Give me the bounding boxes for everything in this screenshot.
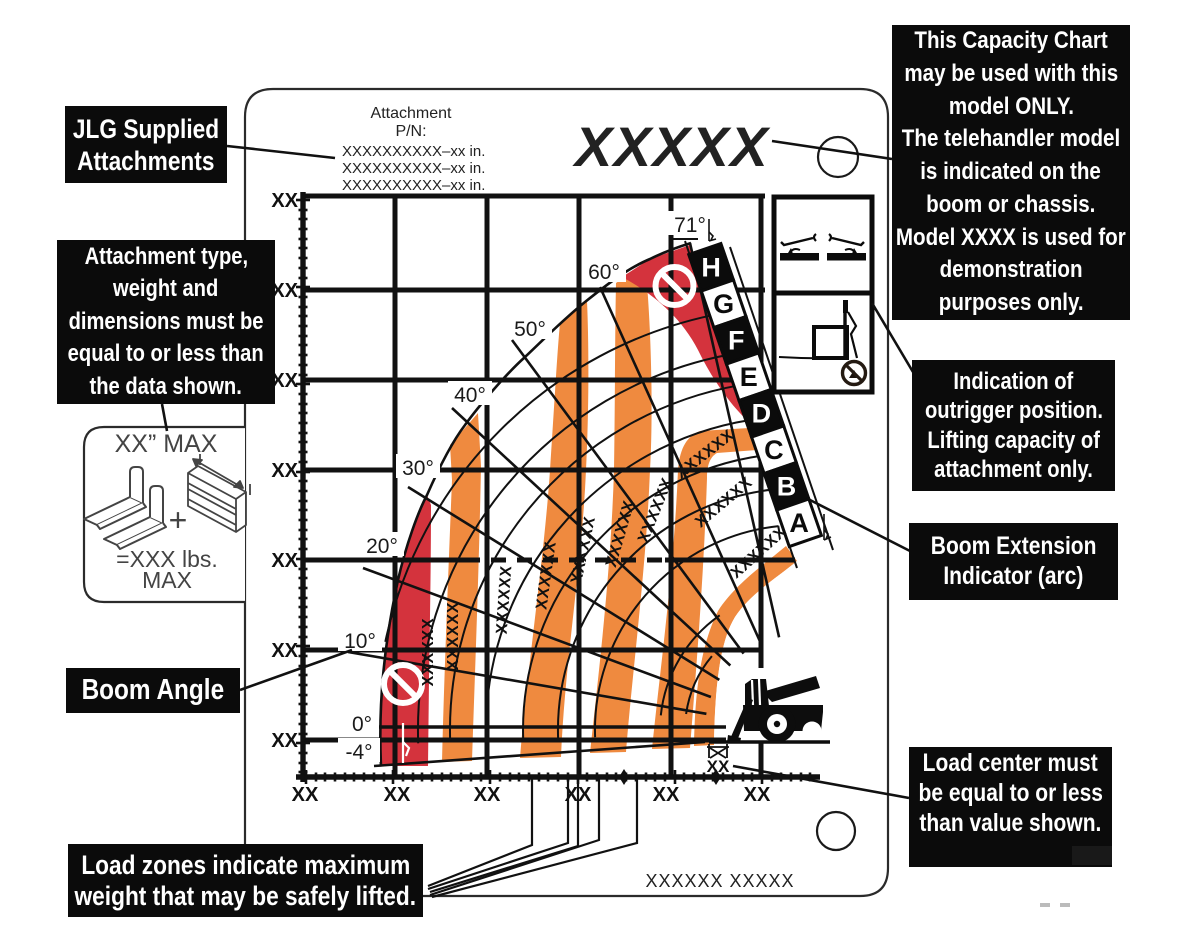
svg-text:XX: XX [384, 784, 411, 806]
svg-text:XX: XX [292, 784, 319, 806]
svg-text:F: F [728, 325, 745, 355]
svg-text:XX: XX [707, 757, 730, 776]
svg-text:XX: XX [653, 784, 680, 806]
svg-text:G: G [713, 289, 734, 319]
svg-text:E: E [740, 362, 758, 392]
svg-text:-4°: -4° [345, 741, 372, 764]
svg-text:XX: XX [271, 280, 298, 302]
svg-text:XX: XX [271, 190, 298, 212]
svg-text:30°: 30° [402, 457, 434, 480]
svg-text:71°: 71° [674, 214, 706, 237]
svg-text:XXXXXX: XXXXXX [420, 618, 437, 687]
svg-text:XXXXXX: XXXXXX [445, 602, 462, 671]
svg-text:+: + [169, 502, 188, 538]
svg-text:H: H [701, 252, 721, 282]
svg-text:50°: 50° [514, 318, 546, 341]
svg-text:Attachment: Attachment [371, 105, 452, 122]
svg-text:XXXXXXXXXX–xx in.: XXXXXXXXXX–xx in. [342, 160, 485, 177]
svg-text:XX: XX [271, 370, 298, 392]
svg-text:A: A [789, 508, 809, 538]
svg-text:XXXXX: XXXXX [572, 115, 771, 178]
svg-text:0°: 0° [352, 713, 372, 736]
svg-text:XX: XX [271, 640, 298, 662]
svg-text:60°: 60° [588, 261, 620, 284]
svg-text:XX: XX [271, 550, 298, 572]
svg-text:MAX: MAX [142, 567, 192, 593]
svg-text:40°: 40° [454, 384, 486, 407]
svg-text:XXXXXXXXXX–xx in.: XXXXXXXXXX–xx in. [342, 177, 485, 194]
svg-text:XX: XX [744, 784, 771, 806]
svg-text:XX: XX [271, 460, 298, 482]
svg-text:XX: XX [474, 784, 501, 806]
svg-text:P/N:: P/N: [395, 123, 426, 140]
svg-text:B: B [777, 471, 797, 501]
svg-text:20°: 20° [366, 535, 398, 558]
svg-text:XXXXXXXXXX–xx in.: XXXXXXXXXX–xx in. [342, 143, 485, 160]
svg-text:C: C [764, 435, 784, 465]
svg-text:XXXXXX XXXXX: XXXXXX XXXXX [645, 871, 794, 891]
svg-text:D: D [752, 398, 772, 428]
svg-text:XX” MAX: XX” MAX [115, 430, 218, 458]
svg-text:XX: XX [271, 730, 298, 752]
svg-text:10°: 10° [344, 630, 376, 653]
